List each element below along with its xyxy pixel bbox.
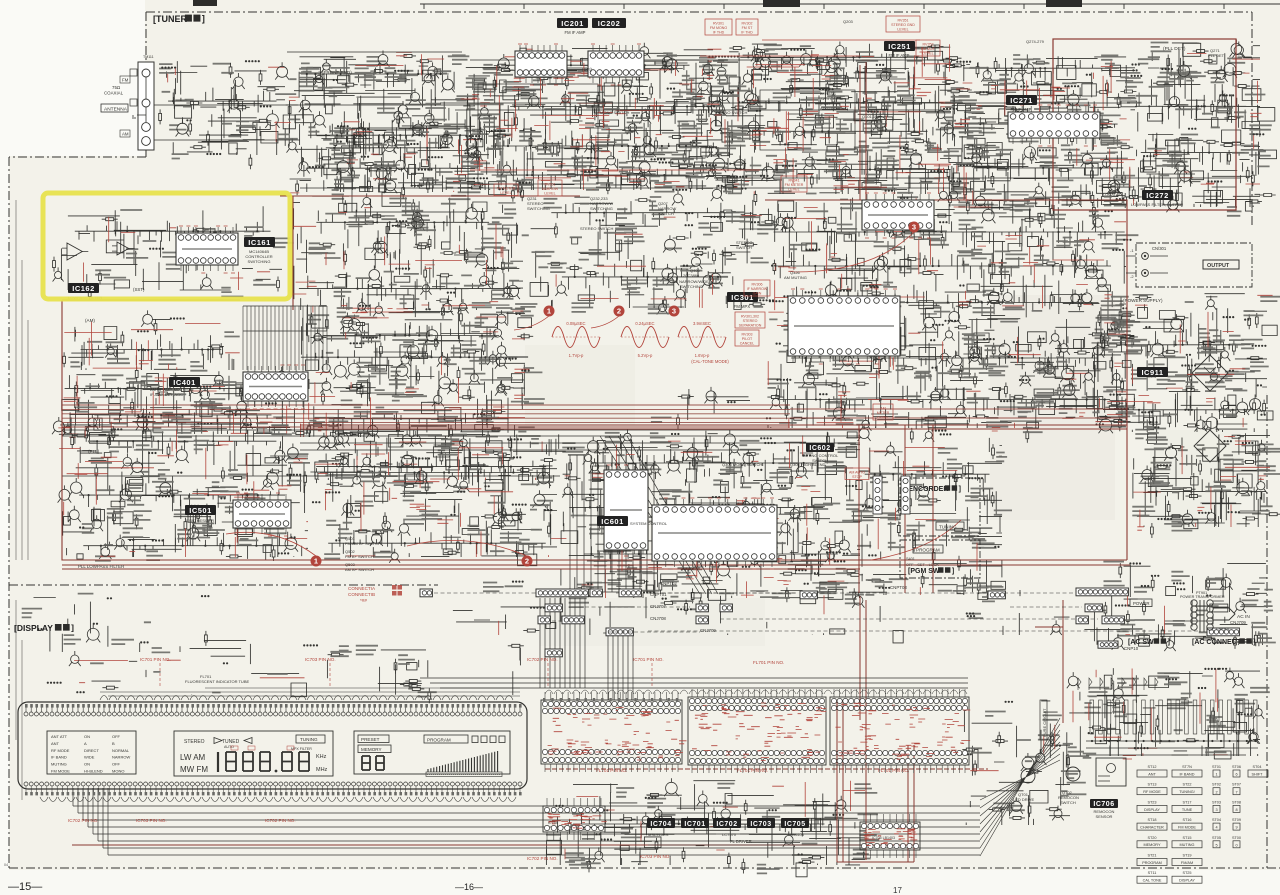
svg-text:[ENCORDER: [ENCORDER <box>906 486 948 493</box>
svg-text:ST12: ST12 <box>1147 765 1156 769</box>
svg-text:OUTPUT: OUTPUT <box>1207 263 1230 269</box>
svg-text:PLL DET: PLL DET <box>1208 53 1225 58</box>
svg-text:ST05: ST05 <box>1212 836 1221 840</box>
svg-text:ST15: ST15 <box>1182 836 1191 840</box>
svg-text:IC702 PIN NO.: IC702 PIN NO. <box>527 657 558 662</box>
svg-text:RF MODE: RF MODE <box>51 748 70 753</box>
svg-text:SWITCHING: SWITCHING <box>680 284 703 289</box>
svg-text:AM AUTO: AM AUTO <box>849 471 865 475</box>
svg-text:3: 3 <box>912 223 916 232</box>
svg-text:(DFI): (DFI) <box>582 67 593 72</box>
svg-text:ANT: ANT <box>1148 772 1156 776</box>
svg-text:CANCEL: CANCEL <box>740 342 755 346</box>
svg-text:STOP: STOP <box>852 475 862 479</box>
svg-text:20C3860: 20C3860 <box>683 273 700 278</box>
svg-text:FM IF AMP: FM IF AMP <box>1011 107 1032 112</box>
svg-text:(FRONT END): (FRONT END) <box>322 70 352 75</box>
svg-text:*##: *## <box>360 598 367 603</box>
svg-text:Q274-279: Q274-279 <box>1026 39 1045 44</box>
svg-text:OFF: OFF <box>112 734 121 739</box>
svg-text:FM MONO: FM MONO <box>710 26 728 30</box>
svg-text:AUTO: AUTO <box>224 745 234 749</box>
svg-text:5: 5 <box>1215 843 1217 847</box>
svg-text:(PLL): (PLL) <box>88 449 100 454</box>
svg-text:IC702 PIN NO.: IC702 PIN NO. <box>68 818 99 823</box>
svg-text:ST06: ST06 <box>1232 765 1241 769</box>
svg-text:[PGM SW: [PGM SW <box>908 568 940 575</box>
svg-text:—15—: —15— <box>8 881 42 893</box>
svg-text:IC702: IC702 <box>716 821 737 828</box>
svg-text:FM/AM: FM/AM <box>1181 861 1193 865</box>
svg-text:LEVEL: LEVEL <box>897 28 908 32</box>
svg-text:(SST): (SST) <box>133 287 145 292</box>
svg-text:TUNING/: TUNING/ <box>1179 790 1196 794</box>
svg-text:ST13: ST13 <box>1147 783 1156 787</box>
svg-text:75Ω: 75Ω <box>112 85 121 90</box>
svg-text:FM MPX: FM MPX <box>734 304 750 309</box>
svg-text:HI-BLEND: HI-BLEND <box>84 769 103 774</box>
svg-text:PROGRAM: PROGRAM <box>1142 861 1162 865</box>
svg-text:RV352: RV352 <box>923 43 934 47</box>
svg-text:MEMORY: MEMORY <box>361 747 382 752</box>
svg-text:IC251: IC251 <box>888 42 911 51</box>
svg-text:REG: REG <box>1148 374 1157 379</box>
svg-text:ST18: ST18 <box>1147 818 1156 822</box>
svg-text:PROGRAM: PROGRAM <box>427 738 451 743</box>
svg-text:COAXIAL: COAXIAL <box>104 91 124 96</box>
svg-text:[AC CONNECT: [AC CONNECT <box>1192 639 1242 646</box>
svg-text:9: 9 <box>1235 826 1237 830</box>
svg-text:FM METER: FM METER <box>497 187 516 191</box>
svg-text:3.9mSEC: 3.9mSEC <box>693 321 711 326</box>
svg-text:GAIN: GAIN <box>753 292 762 296</box>
svg-text:CAL TONE: CAL TONE <box>1143 879 1162 883</box>
svg-text:LEVEL: LEVEL <box>500 191 511 195</box>
svg-text:FM MUT: FM MUT <box>921 47 936 51</box>
svg-text:ST25: ST25 <box>1182 871 1191 875</box>
svg-text:IC703 PIN NO.: IC703 PIN NO. <box>305 657 336 662</box>
svg-text:PILOT: PILOT <box>742 337 753 341</box>
svg-text:IC754: IC754 <box>548 821 558 825</box>
svg-text:RV501: RV501 <box>545 183 556 187</box>
svg-text:Q306 MONO SWITCH: Q306 MONO SWITCH <box>722 462 762 467</box>
svg-text:CNPT03: CNPT03 <box>890 585 907 590</box>
svg-text:[TUNER: [TUNER <box>153 14 187 24</box>
svg-text:PURE CIRCUIT: PURE CIRCUIT <box>1042 708 1047 737</box>
svg-text:STEREO: STEREO <box>184 739 205 745</box>
svg-text:FM/AM B+ SWITCH: FM/AM B+ SWITCH <box>345 541 381 546</box>
svg-text:ST11: ST11 <box>1148 871 1157 875</box>
svg-text:SENSOR: SENSOR <box>1096 814 1113 819</box>
svg-text:ST16: ST16 <box>1182 818 1191 822</box>
svg-text:CNP10: CNP10 <box>1124 646 1139 651</box>
svg-text:(AM): (AM) <box>85 318 95 323</box>
svg-text:1.6Vp-p: 1.6Vp-p <box>695 353 710 358</box>
svg-text:ANT: ANT <box>51 741 60 746</box>
svg-text:ON: ON <box>84 762 90 767</box>
svg-text:IC271: IC271 <box>1010 96 1033 105</box>
svg-text:]: ] <box>952 568 954 575</box>
svg-text:IC201: IC201 <box>561 19 584 28</box>
svg-text:LOCAL/DX: LOCAL/DX <box>1103 192 1123 197</box>
svg-text:IC702 PIN NO.: IC702 PIN NO. <box>527 856 558 861</box>
svg-text:Q305 HIGH BLEND: Q305 HIGH BLEND <box>790 462 825 467</box>
svg-text:NARROW: NARROW <box>112 755 130 760</box>
svg-text:MW FM: MW FM <box>180 765 208 774</box>
svg-text:LC7570: LC7570 <box>722 832 737 837</box>
svg-text:ST08: ST08 <box>1232 800 1241 804</box>
svg-text:LED DRIVE: LED DRIVE <box>1013 797 1034 802</box>
svg-text:8: 8 <box>1235 808 1237 812</box>
svg-text:2: 2 <box>525 557 529 566</box>
svg-text:ST07: ST07 <box>1232 783 1241 787</box>
svg-text:MUTING: MUTING <box>51 762 67 767</box>
svg-text:17: 17 <box>893 886 902 895</box>
svg-text:SHIFT: SHIFT <box>1252 773 1264 777</box>
svg-text:IC701: IC701 <box>684 821 705 828</box>
svg-text:IC202: IC202 <box>598 19 621 28</box>
svg-text:DIRECT: DIRECT <box>84 748 99 753</box>
svg-text:SYSTEM CONTROL: SYSTEM CONTROL <box>630 521 668 526</box>
svg-text:SWITCHING: SWITCHING <box>248 259 271 264</box>
svg-text:FLUORESCENT INDICATOR TUBE: FLUORESCENT INDICATOR TUBE <box>185 679 249 684</box>
svg-text:CNJ708: CNJ708 <box>650 616 666 621</box>
svg-text:B: B <box>112 741 115 746</box>
svg-text:RV302: RV302 <box>742 22 753 26</box>
svg-text:FL701 PIN NO.: FL701 PIN NO. <box>596 768 627 773</box>
svg-text:IF BAND: IF BAND <box>51 755 67 760</box>
svg-text:0.24µSEC: 0.24µSEC <box>635 321 654 326</box>
svg-text:OFF→SET→LOCK: OFF→SET→LOCK <box>906 563 939 567</box>
svg-text:IC701 PIN NO.: IC701 PIN NO. <box>140 657 171 662</box>
svg-text:IC602: IC602 <box>809 445 830 452</box>
svg-text:1: 1 <box>547 307 551 316</box>
svg-text:PROGRAM: PROGRAM <box>916 548 940 553</box>
svg-text:AM: AM <box>880 407 885 411</box>
svg-text:FL DRIVER: FL DRIVER <box>730 839 752 844</box>
svg-text:5.2Vp-p: 5.2Vp-p <box>638 353 653 358</box>
svg-text:FL701 PIN NO.: FL701 PIN NO. <box>878 768 909 773</box>
svg-text:IC601: IC601 <box>601 517 624 526</box>
svg-text:IC162: IC162 <box>72 284 95 293</box>
svg-text:IC704: IC704 <box>650 821 671 828</box>
svg-text:]: ] <box>1253 639 1255 646</box>
svg-text:FL701 PIN NO.: FL701 PIN NO. <box>737 768 768 773</box>
svg-text:CNJ707: CNJ707 <box>650 604 666 609</box>
svg-text:METER: METER <box>877 411 890 415</box>
svg-text:MHz: MHz <box>316 767 328 773</box>
svg-text:STEREO SWITCH: STEREO SWITCH <box>580 226 613 231</box>
svg-text:CNPT02: CNPT02 <box>660 581 677 586</box>
svg-text:0.08µSEC: 0.08µSEC <box>566 321 585 326</box>
svg-text:AM: AM <box>122 132 129 137</box>
svg-text:(CAL-TONE MODE): (CAL-TONE MODE) <box>691 359 729 364</box>
svg-text:ST09: ST09 <box>1232 818 1241 822</box>
svg-text:ON: ON <box>84 734 90 739</box>
svg-text:DISPLAY: DISPLAY <box>1144 808 1160 812</box>
svg-text:7: 7 <box>1235 790 1237 794</box>
svg-text:RF MODE: RF MODE <box>1143 790 1161 794</box>
svg-text:ADJUSTMENT): ADJUSTMENT) <box>820 106 849 111</box>
svg-text:LOWPASS FILTER, BUFFER: LOWPASS FILTER, BUFFER <box>1131 202 1183 207</box>
svg-text:1: 1 <box>314 557 318 566</box>
svg-text:LB1403: LB1403 <box>790 832 805 837</box>
svg-text:CNP901: CNP901 <box>1216 627 1230 631</box>
svg-text:ST00: ST00 <box>1232 836 1241 840</box>
svg-text:LEVEL: LEVEL <box>788 188 799 192</box>
svg-text:TUNING: TUNING <box>939 525 957 530</box>
svg-text:FM IF AMP: FM IF AMP <box>565 30 586 35</box>
svg-text:STEREO GND: STEREO GND <box>891 23 915 27</box>
svg-text:ST01: ST01 <box>1212 765 1221 769</box>
svg-text:IC706: IC706 <box>1093 801 1114 808</box>
svg-text:IC705: IC705 <box>784 821 805 828</box>
svg-text:FM MODE: FM MODE <box>1178 826 1196 830</box>
svg-text:04: 04 <box>4 863 8 867</box>
svg-text:LEVEL: LEVEL <box>877 416 888 420</box>
svg-text:IC401: IC401 <box>173 378 196 387</box>
svg-text:ST04: ST04 <box>1252 765 1261 769</box>
svg-text:IC705 LB1403: IC705 LB1403 <box>872 836 895 840</box>
svg-text:RV301: RV301 <box>713 22 724 26</box>
svg-text:STEREO: STEREO <box>743 319 758 323</box>
svg-text:4: 4 <box>1215 826 1217 830</box>
svg-text:]: ] <box>1168 639 1170 646</box>
svg-text:OFF: OFF <box>112 762 121 767</box>
svg-text:LW AM: LW AM <box>180 753 206 762</box>
svg-text:ST03: ST03 <box>1212 800 1221 804</box>
svg-text:(POWER SUPPLY): (POWER SUPPLY) <box>1123 298 1163 303</box>
svg-text:ST17: ST17 <box>1182 800 1191 804</box>
svg-text:ST21: ST21 <box>1147 854 1156 858</box>
svg-text:—16—: —16— <box>455 882 483 892</box>
svg-text:3: 3 <box>1215 808 1217 812</box>
svg-text:IC272: IC272 <box>1146 191 1169 200</box>
svg-text:MONO SWITCH: MONO SWITCH <box>718 110 747 115</box>
svg-text:AM B+ SWITCH: AM B+ SWITCH <box>345 567 374 572</box>
svg-text:TUNE: TUNE <box>1182 808 1193 812</box>
svg-text:POWER TRANSFORMER: POWER TRANSFORMER <box>1180 595 1225 599</box>
svg-text:[AC SW: [AC SW <box>1128 639 1154 646</box>
svg-text:IC701 PIN NO.: IC701 PIN NO. <box>633 657 664 662</box>
svg-text:FL701 PIN NO.: FL701 PIN NO. <box>753 660 784 665</box>
svg-text:PLL LOWPASS FILTER: PLL LOWPASS FILTER <box>78 564 124 569</box>
svg-text:LEVEL: LEVEL <box>922 52 933 56</box>
svg-text:RV306: RV306 <box>752 283 763 287</box>
svg-text:ST19: ST19 <box>1182 854 1191 858</box>
svg-text:[DISPLAY: [DISPLAY <box>14 623 53 633</box>
svg-text:FM B+ SWITCH: FM B+ SWITCH <box>345 554 374 559</box>
svg-text:RV351: RV351 <box>898 19 909 23</box>
svg-text:SWITCH: SWITCH <box>736 245 752 250</box>
svg-text:ST04: ST04 <box>1212 818 1221 822</box>
svg-text:3: 3 <box>672 307 676 316</box>
svg-text:MONO: MONO <box>112 769 124 774</box>
svg-text:ST23: ST23 <box>1147 800 1156 804</box>
svg-text:FM ST: FM ST <box>742 26 754 30</box>
svg-text:IF THD: IF THD <box>741 31 753 35</box>
svg-text:PRESET: PRESET <box>361 737 380 742</box>
svg-text:IC161: IC161 <box>248 238 271 247</box>
svg-text:FM METER: FM METER <box>785 183 804 187</box>
svg-text:ANT ATT: ANT ATT <box>51 734 68 739</box>
svg-text:IF THD: IF THD <box>713 31 725 35</box>
svg-text:LEVEL: LEVEL <box>544 192 555 196</box>
svg-text:MEMORY: MEMORY <box>1143 843 1160 847</box>
svg-text:MONO SWITCH: MONO SWITCH <box>600 110 629 115</box>
svg-text:IC703 PIN NO.: IC703 PIN NO. <box>640 854 671 859</box>
svg-text:1: 1 <box>1215 773 1217 777</box>
svg-text:AM MUTING: AM MUTING <box>784 275 807 280</box>
svg-text:FM: FM <box>122 78 129 83</box>
svg-text:]: ] <box>959 486 961 493</box>
svg-text:6: 6 <box>1235 773 1237 777</box>
svg-text:CNJ709: CNJ709 <box>1230 620 1246 625</box>
svg-text:S401: S401 <box>906 557 915 561</box>
svg-text:]: ] <box>71 623 74 633</box>
svg-text:BUFFER: BUFFER <box>866 119 882 124</box>
svg-text:IC703: IC703 <box>750 821 771 828</box>
svg-text:2: 2 <box>617 307 621 316</box>
svg-text:(PLL DET): (PLL DET) <box>1163 46 1186 52</box>
svg-text:]: ] <box>202 14 205 24</box>
svg-text:IC703 PIN NO.: IC703 PIN NO. <box>136 818 167 823</box>
svg-text:TUNING: TUNING <box>300 737 318 742</box>
svg-text:IF BAND: IF BAND <box>1180 772 1195 776</box>
svg-text:CN/301: CN/301 <box>1152 246 1167 251</box>
svg-text:ST02: ST02 <box>1212 783 1221 787</box>
svg-text:ST7N: ST7N <box>1182 765 1192 769</box>
svg-text:MSL915RS: MSL915RS <box>648 832 669 837</box>
svg-text:DISPLAY: DISPLAY <box>1179 879 1195 883</box>
svg-text:CONNECTIA: CONNECTIA <box>348 586 376 591</box>
svg-text:ST20: ST20 <box>1147 836 1156 840</box>
svg-text:SYNTHESIZER: SYNTHESIZER <box>186 518 214 523</box>
svg-text:SWITCHING: SWITCHING <box>590 206 613 211</box>
svg-text:ANTENNA: ANTENNA <box>104 107 128 113</box>
svg-text:NORMAL: NORMAL <box>112 748 130 753</box>
svg-text:2: 2 <box>1215 790 1217 794</box>
svg-text:IC702 PIN NO.: IC702 PIN NO. <box>265 818 296 823</box>
svg-text:CHARACTER: CHARACTER <box>1140 826 1164 830</box>
svg-text:MUTING: MUTING <box>1180 843 1195 847</box>
svg-text:IF AMP, DET, AGC: IF AMP, DET, AGC <box>150 392 183 397</box>
svg-text:Q203: Q203 <box>843 19 854 24</box>
svg-text:POWER: POWER <box>1133 601 1150 606</box>
svg-text:SWITCH: SWITCH <box>1060 800 1076 805</box>
svg-text:RV301,302: RV301,302 <box>741 315 759 319</box>
svg-text:IF NARROW: IF NARROW <box>747 287 768 291</box>
svg-text:KHz: KHz <box>316 754 327 760</box>
svg-text:ST22: ST22 <box>1182 783 1191 787</box>
svg-text:CONNECTIB: CONNECTIB <box>348 592 375 597</box>
svg-text:NARROW: NARROW <box>542 187 559 191</box>
svg-text:SEPARATION: SEPARATION <box>739 324 762 328</box>
svg-text:IC301: IC301 <box>731 293 754 302</box>
svg-text:TM111: TM111 <box>143 55 154 59</box>
svg-text:FM IF AMP: FM IF AMP <box>889 53 910 58</box>
svg-text:CNJ709: CNJ709 <box>700 628 716 633</box>
svg-text:WIDE: WIDE <box>84 755 95 760</box>
svg-text:RV303: RV303 <box>742 333 753 337</box>
svg-text:RV341: RV341 <box>789 179 800 183</box>
svg-text:CNP701: CNP701 <box>650 592 667 597</box>
svg-text:0: 0 <box>1235 843 1237 847</box>
svg-text:AC IN: AC IN <box>1237 614 1250 620</box>
svg-text:SWITCHING: SWITCHING <box>527 206 550 211</box>
svg-text:FM MODE: FM MODE <box>51 769 70 774</box>
svg-text:A: A <box>84 741 87 746</box>
svg-text:SWITCH: SWITCH <box>658 211 674 216</box>
svg-text:1.7Vp-p: 1.7Vp-p <box>569 353 584 358</box>
